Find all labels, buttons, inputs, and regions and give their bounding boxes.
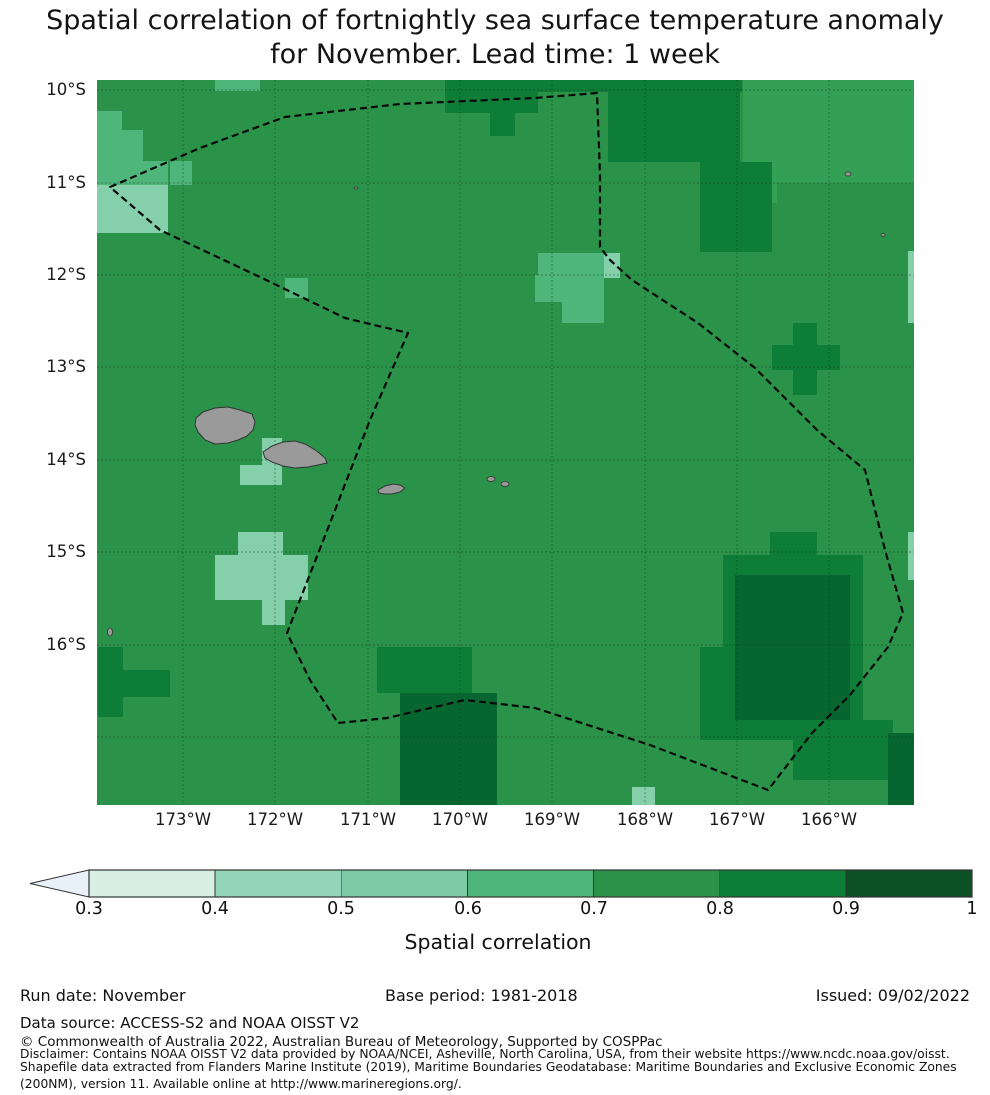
islet-speck [487,477,495,482]
colorbar-segment [720,870,846,897]
data-source-text: Data source: ACCESS-S2 and NOAA OISST V2 [20,1014,359,1032]
disclaimer-line2: Shapefile data extracted from Flanders M… [20,1061,980,1074]
x-tick-label: 166°W [784,810,874,829]
x-tick-label: 169°W [507,810,597,829]
correlation-cell [97,130,143,161]
y-tick-label: 12°S [0,265,86,284]
correlation-cell [400,693,497,805]
correlation-cell [908,532,914,580]
correlation-cell [632,787,655,805]
y-tick-label: 10°S [0,80,86,99]
correlation-cell [238,532,283,555]
islet-speck [354,187,358,189]
colorbar-tick-label: 0.4 [185,899,245,919]
x-tick-label: 167°W [692,810,782,829]
run-date-text: Run date: November [20,986,186,1005]
colorbar-tick-label: 0.3 [59,899,119,919]
correlation-cell [97,111,122,130]
x-tick-label: 170°W [415,810,505,829]
correlation-map [97,80,914,805]
disclaimer-text: Disclaimer: Contains NOAA OISST V2 data … [20,1048,980,1091]
map-canvas [97,80,914,805]
chart-title-line2: for November. Lead time: 1 week [46,38,944,72]
y-tick-label: 13°S [0,357,86,376]
correlation-cell [908,251,914,323]
islet-speck [881,234,885,237]
correlation-cell [98,647,123,717]
islet-speck [108,628,113,636]
correlation-cell [735,575,850,720]
colorbar-extend-arrow [30,870,89,897]
correlation-cell [240,465,282,485]
islet-speck [501,482,509,487]
figure: Spatial correlation of fortnightly sea s… [0,0,990,1095]
colorbar-tick-label: 0.5 [311,899,371,919]
y-tick-label: 16°S [0,635,86,654]
colorbar-segment [341,870,467,897]
colorbar-segment [215,870,341,897]
chart-title-line1: Spatial correlation of fortnightly sea s… [46,4,944,38]
y-tick-label: 14°S [0,450,86,469]
correlation-cell [97,161,168,185]
x-tick-label: 173°W [138,810,228,829]
x-tick-label: 172°W [230,810,320,829]
correlation-cell [215,80,260,91]
colorbar-tick-label: 0.8 [690,899,750,919]
correlation-cell [772,345,840,370]
correlation-cell [445,92,538,113]
colorbar-label: Spatial correlation [404,930,591,954]
correlation-cell [215,555,308,600]
correlation-cell [535,275,562,302]
correlation-cell [262,600,285,625]
colorbar-tick-label: 0.6 [438,899,498,919]
disclaimer-line3: (200NM), version 11. Available online at… [20,1078,980,1091]
correlation-cell [97,185,168,233]
correlation-cell [377,647,472,693]
islet-speck [845,172,851,176]
y-tick-label: 11°S [0,173,86,192]
base-period-text: Base period: 1981-2018 [385,986,578,1005]
colorbar-segment [467,870,593,897]
issued-date-text: Issued: 09/02/2022 [816,986,970,1005]
x-tick-label: 171°W [323,810,413,829]
correlation-cell [122,670,170,697]
correlation-cell [700,162,772,252]
correlation-cell [562,300,604,323]
colorbar-segment [846,870,972,897]
colorbar-tick-label: 0.7 [564,899,624,919]
correlation-cell [170,161,192,185]
colorbar-segment [89,870,215,897]
colorbar-tick-label: 0.9 [816,899,876,919]
y-tick-label: 15°S [0,542,86,561]
colorbar-segment [594,870,720,897]
correlation-cell [793,720,893,780]
correlation-cell [608,92,740,162]
correlation-cell [490,113,515,136]
colorbar-tick-label: 1 [942,899,990,919]
chart-title: Spatial correlation of fortnightly sea s… [46,4,944,72]
x-tick-label: 168°W [600,810,690,829]
correlation-cell [888,733,914,805]
